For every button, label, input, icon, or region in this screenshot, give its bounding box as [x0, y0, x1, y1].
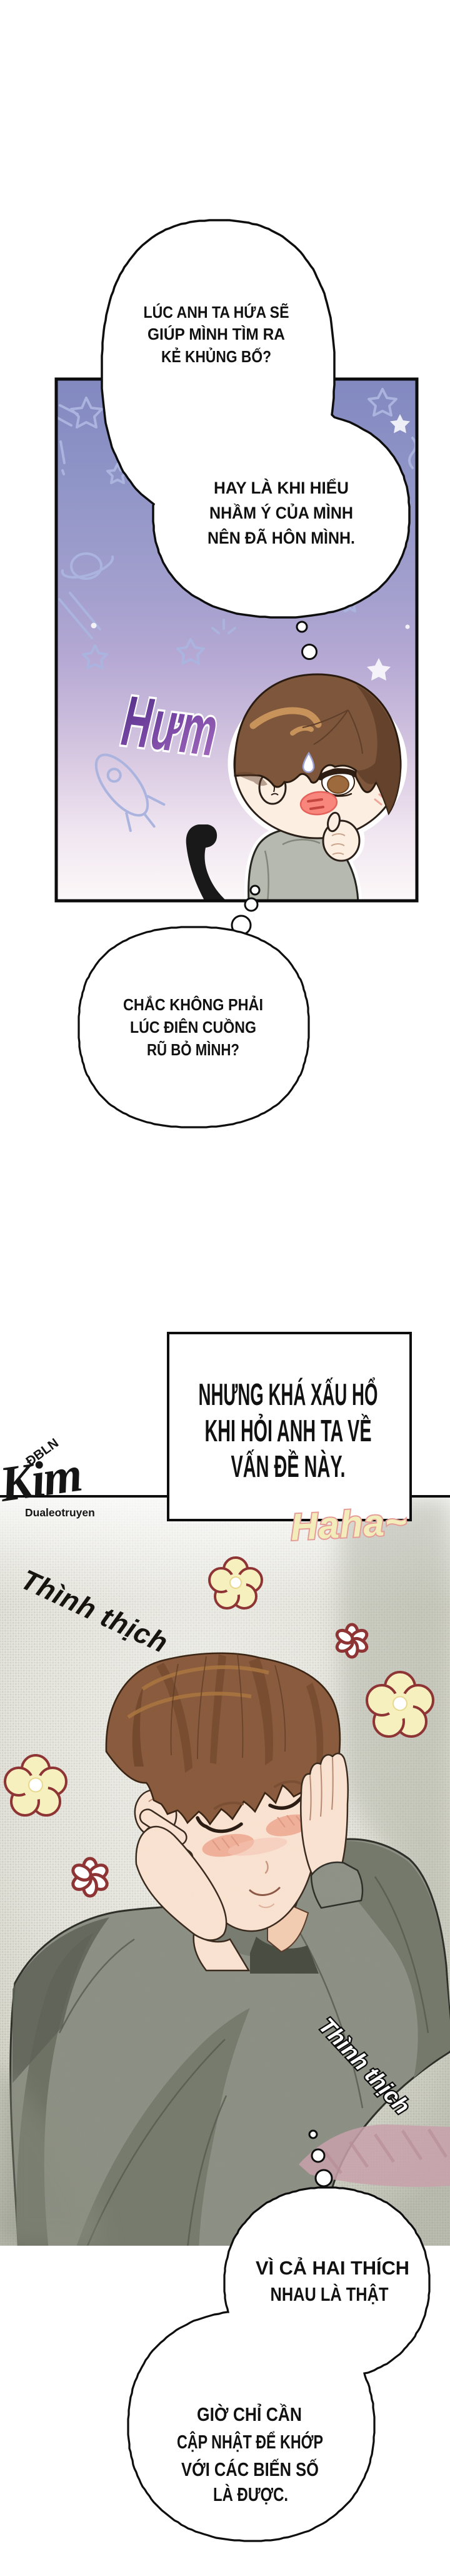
svg-text:NHẦM Ý CỦA MÌNH: NHẦM Ý CỦA MÌNH — [209, 502, 353, 522]
svg-text:LÚC ĐIÊN CUỒNG: LÚC ĐIÊN CUỒNG — [130, 1018, 256, 1037]
svg-text:GIÚP MÌNH TÌM RA: GIÚP MÌNH TÌM RA — [147, 325, 285, 343]
svg-text:VÌ CẢ HAI THÍCH: VÌ CẢ HAI THÍCH — [256, 2257, 409, 2279]
svg-text:Dualeotruyen: Dualeotruyen — [25, 1506, 95, 1519]
svg-text:GIỜ CHỈ CẦN: GIỜ CHỈ CẦN — [197, 2403, 302, 2425]
svg-text:LÚC ANH TA HỨA SẼ: LÚC ANH TA HỨA SẼ — [144, 303, 289, 322]
svg-text:VỚI CÁC BIẾN SỐ: VỚI CÁC BIẾN SỐ — [181, 2458, 319, 2480]
svg-text:Kim: Kim — [0, 1447, 84, 1513]
svg-text:NHƯNG KHÁ XẤU HỔ: NHƯNG KHÁ XẤU HỔ — [199, 1377, 378, 1412]
svg-text:CẬP NHẬT ĐỂ KHỚP: CẬP NHẬT ĐỂ KHỚP — [177, 2430, 323, 2453]
svg-text:HAY LÀ KHI HIỂU: HAY LÀ KHI HIỂU — [214, 478, 349, 497]
svg-text:LÀ ĐƯỢC.: LÀ ĐƯỢC. — [213, 2483, 288, 2505]
svg-text:Haha~: Haha~ — [289, 1500, 408, 1548]
svg-text:NHAU LÀ THẬT: NHAU LÀ THẬT — [271, 2283, 389, 2305]
svg-text:VẤN ĐỀ NÀY.: VẤN ĐỀ NÀY. — [231, 1450, 346, 1484]
svg-text:CHẮC KHÔNG PHẢI: CHẮC KHÔNG PHẢI — [123, 995, 263, 1014]
svg-text:Hưm: Hưm — [118, 680, 222, 771]
svg-text:NÊN ĐÃ HÔN MÌNH.: NÊN ĐÃ HÔN MÌNH. — [207, 528, 355, 547]
svg-text:RŨ BỎ MÌNH?: RŨ BỎ MÌNH? — [147, 1040, 239, 1059]
svg-text:KẺ KHỦNG BỐ?: KẺ KHỦNG BỐ? — [161, 347, 271, 366]
svg-text:KHI HỎI ANH TA VỀ: KHI HỎI ANH TA VỀ — [205, 1414, 372, 1448]
